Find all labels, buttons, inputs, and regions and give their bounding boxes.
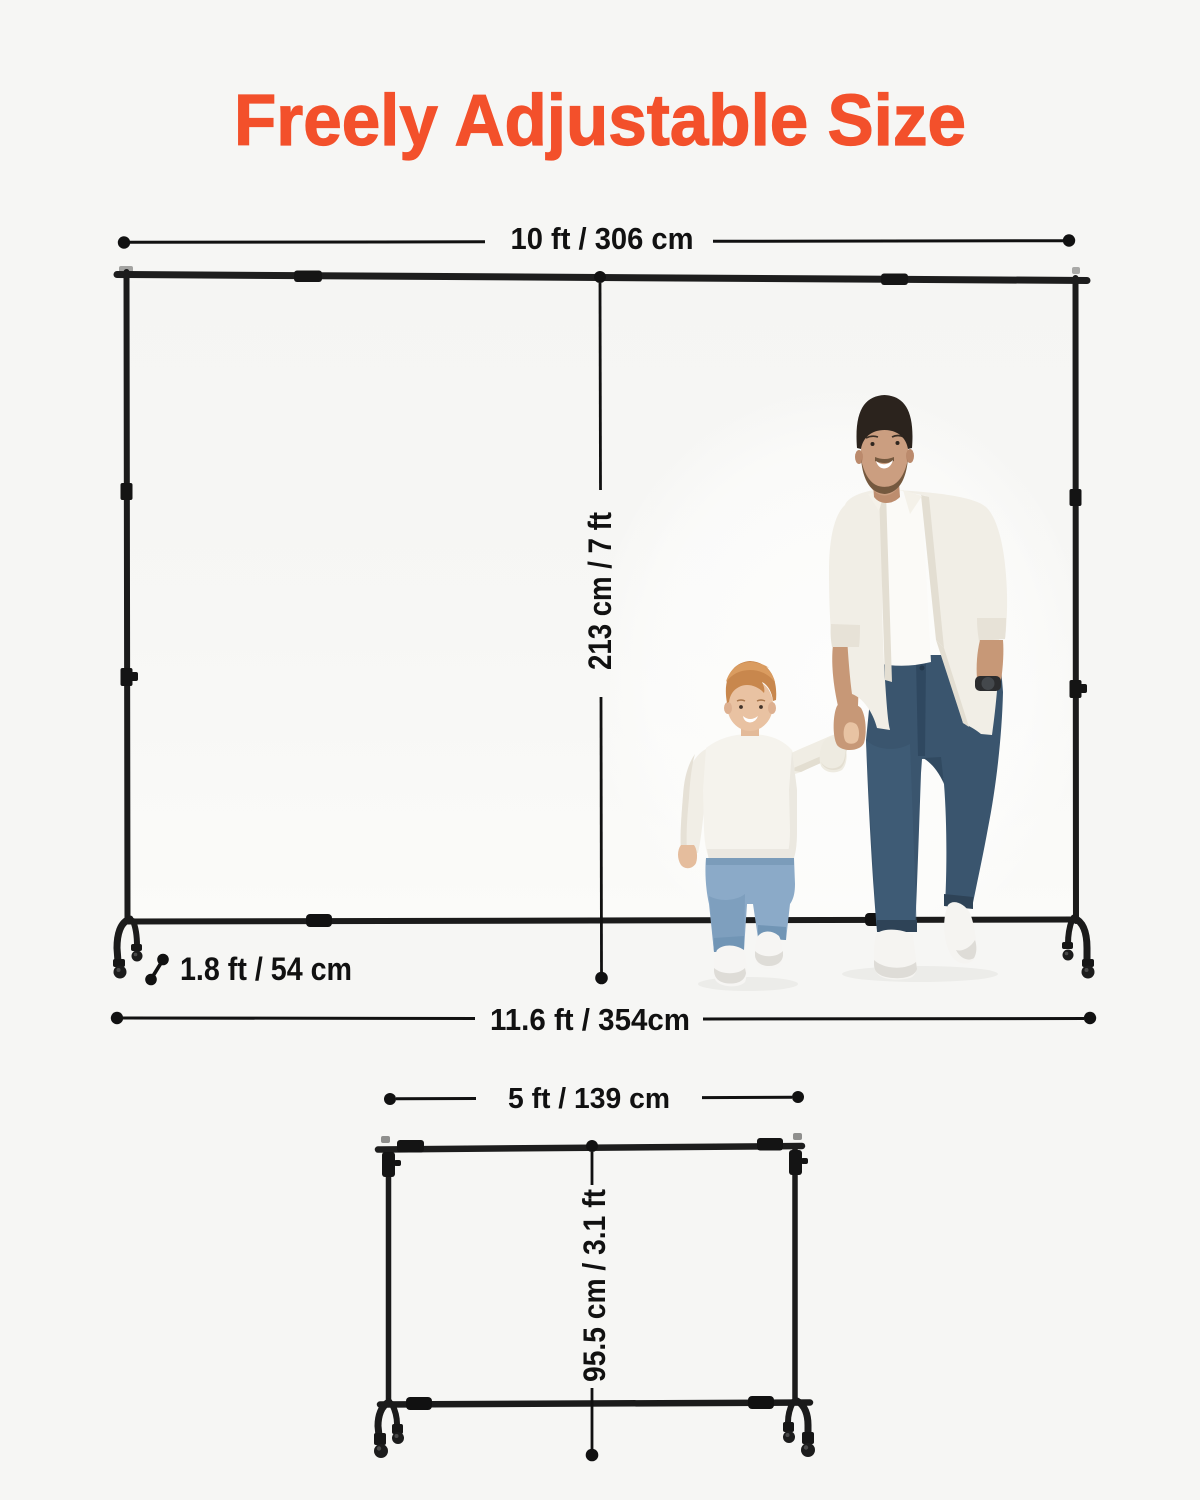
svg-text:10 ft / 306 cm: 10 ft / 306 cm [511,221,694,256]
svg-text:Freely Adjustable Size: Freely Adjustable Size [234,81,966,161]
svg-text:11.6 ft / 354cm: 11.6 ft / 354cm [490,1002,690,1037]
svg-text:213 cm / 7 ft: 213 cm / 7 ft [582,512,618,670]
svg-text:1.8 ft / 54 cm: 1.8 ft / 54 cm [180,951,352,987]
svg-text:5 ft / 139 cm: 5 ft / 139 cm [508,1083,670,1115]
svg-text:95.5 cm / 3.1 ft: 95.5 cm / 3.1 ft [576,1189,612,1382]
